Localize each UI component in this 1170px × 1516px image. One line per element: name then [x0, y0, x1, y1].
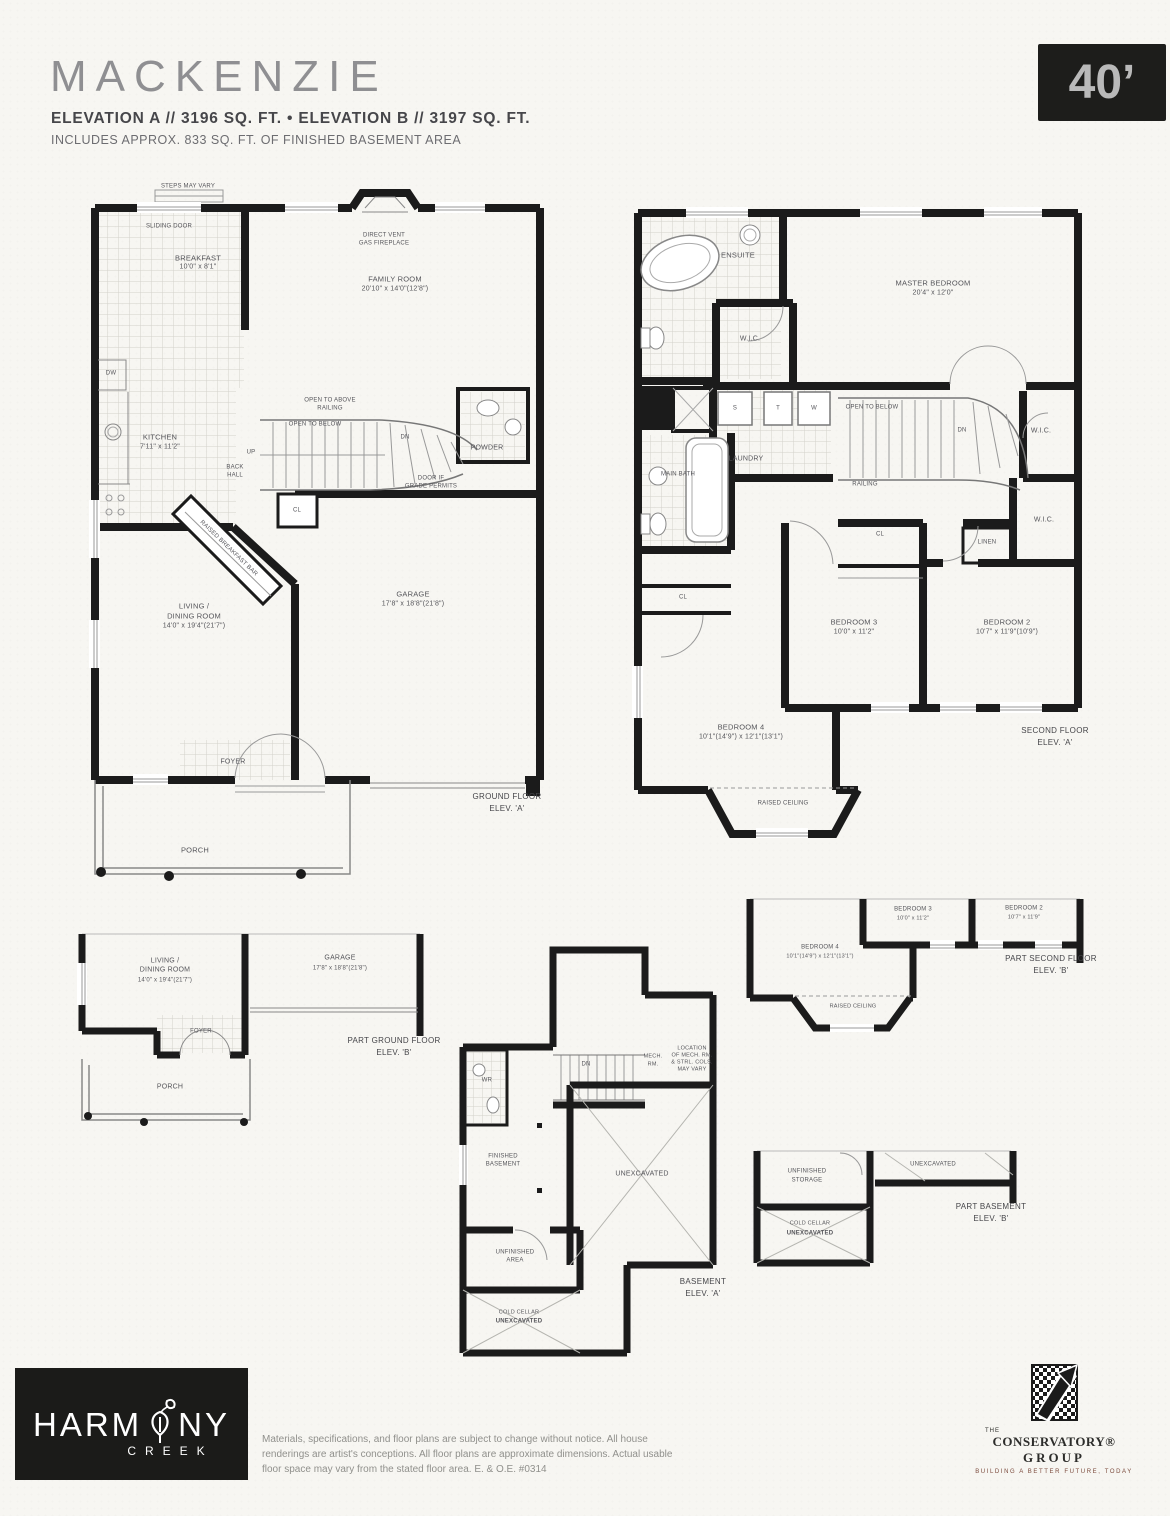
- room-label-main-bath: MAIN BATH: [661, 471, 695, 479]
- room-dims-living: 14'0" x 19'4"(21'7"): [138, 977, 192, 985]
- part-basement-b-plan: UNFINISHED STORAGE UNEXCAVATED COLD CELL…: [745, 1145, 1045, 1285]
- dn-label: DN: [400, 434, 409, 442]
- open-below-label: OPEN TO BELOW: [289, 421, 342, 429]
- room-dims-bedroom2: 10'7" x 11'9": [1008, 915, 1040, 922]
- room-label-living: LIVING /: [179, 601, 209, 610]
- room-label-porch: PORCH: [157, 1084, 183, 1093]
- room-label-living2: DINING ROOM: [167, 611, 221, 620]
- unexcavated-label: UNEXCAVATED: [910, 1161, 956, 1169]
- closet-label: CL: [293, 507, 301, 515]
- back-hall-label: BACK: [226, 464, 243, 472]
- room-label-laundry: LAUNDRY: [729, 456, 764, 465]
- basement-note: INCLUDES APPROX. 833 SQ. FT. OF FINISHED…: [51, 133, 461, 147]
- storage-label2: STORAGE: [792, 1177, 823, 1185]
- part-basement-caption2: ELEV. 'B': [973, 1214, 1008, 1224]
- part-ground-b-plan: LIVING / DINING ROOM 14'0" x 19'4"(21'7"…: [62, 928, 457, 1143]
- cold-cellar-label: COLD CELLAR: [499, 1310, 539, 1317]
- room-label-bedroom3: BEDROOM 3: [894, 906, 932, 914]
- back-hall-label2: HALL: [227, 472, 243, 480]
- part-second-caption2: ELEV. 'B': [1033, 966, 1068, 976]
- second-caption2: ELEV. 'A': [1037, 738, 1072, 748]
- room-dims-family: 20'10" x 14'0"(12'8"): [362, 286, 429, 295]
- room-dims-bedroom2: 10'7" x 11'9"(10'9"): [976, 629, 1038, 638]
- unfinished-label: UNFINISHED: [496, 1249, 535, 1257]
- page-title: MACKENZIE: [50, 52, 388, 102]
- harmony-text-left: HARM: [33, 1410, 142, 1440]
- conservatory-group-text: GROUP: [975, 1450, 1133, 1466]
- room-label-garage: GARAGE: [396, 589, 429, 598]
- laundry-s: S: [733, 405, 737, 413]
- room-label-family: FAMILY ROOM: [368, 274, 422, 283]
- room-dims-living: 14'0" x 19'4"(21'7"): [163, 623, 226, 632]
- up-label: UP: [247, 449, 256, 457]
- note-label2: OF MECH. RM.: [672, 1053, 713, 1060]
- room-label-kitchen: KITCHEN: [143, 432, 177, 441]
- part-second-caption: PART SECOND FLOOR: [1005, 954, 1097, 964]
- room-label-foyer: FOYER: [220, 759, 245, 768]
- cold-cellar-label2: UNEXCAVATED: [496, 1318, 543, 1326]
- dw-label: DW: [106, 370, 116, 378]
- door-grade-label2: GRADE PERMITS: [405, 483, 457, 491]
- room-label-foyer: FOYER: [190, 1028, 212, 1036]
- ground-caption: GROUND FLOOR: [473, 792, 542, 802]
- second-caption: SECOND FLOOR: [1021, 726, 1089, 736]
- finished-label: FINISHED: [488, 1153, 518, 1161]
- room-label-bedroom3: BEDROOM 3: [831, 617, 878, 626]
- room-dims-breakfast: 10'0" x 8'1": [180, 264, 217, 273]
- raised-ceiling-label: RAISED CEILING: [758, 800, 809, 808]
- room-dims-bedroom3: 10'0" x 11'2": [834, 629, 874, 638]
- door-grade-label: DOOR IF: [418, 475, 444, 483]
- conservatory-name: CONSERVATORY®: [975, 1434, 1133, 1450]
- elevation-line: ELEVATION A // 3196 SQ. FT. • ELEVATION …: [51, 110, 530, 128]
- open-above-label2: RAILING: [317, 405, 342, 413]
- fireplace-label: DIRECT VENT: [363, 232, 405, 240]
- finished-label2: BASEMENT: [486, 1161, 521, 1169]
- cold-cellar-label: COLD CELLAR: [790, 1221, 830, 1228]
- raised-ceiling-label: RAISED CEILING: [830, 1004, 877, 1011]
- laundry-t: T: [776, 405, 780, 413]
- room-dims-garage: 17'8" x 18'8"(21'8"): [382, 601, 445, 610]
- leaf-icon: [143, 1398, 177, 1446]
- room-label-garage: GARAGE: [324, 955, 355, 964]
- wr-label: WR: [482, 1077, 492, 1085]
- laundry-w: W: [811, 405, 817, 413]
- room-label-bedroom2: BEDROOM 2: [1005, 905, 1043, 913]
- dn-label: DN: [957, 427, 966, 435]
- unexcavated-label: UNEXCAVATED: [615, 1171, 668, 1180]
- room-dims-kitchen: 7'11" x 11'2": [140, 444, 180, 453]
- harmony-text-right: NY: [178, 1410, 230, 1440]
- note-label4: MAY VARY: [677, 1067, 706, 1074]
- cold-cellar-label2: UNEXCAVATED: [787, 1230, 834, 1238]
- basement-caption: BASEMENT: [680, 1277, 726, 1287]
- railing-label: RAILING: [852, 481, 877, 489]
- part-second-b-plan: BEDROOM 3 10'0" x 11'2" BEDROOM 2 10'7" …: [735, 895, 1090, 1045]
- room-dims-bedroom3: 10'0" x 11'2": [897, 916, 929, 923]
- basement-caption2: ELEV. 'A': [685, 1289, 720, 1299]
- sliding-door-label: SLIDING DOOR: [146, 223, 192, 231]
- wic-master-label: W.I.C.: [740, 336, 760, 345]
- room-label-bedroom4: BEDROOM 4: [718, 722, 765, 731]
- wic-right-label: W.I.C.: [1031, 428, 1051, 437]
- part-ground-caption: PART GROUND FLOOR: [347, 1036, 440, 1046]
- part-basement-caption: PART BASEMENT: [956, 1202, 1027, 1212]
- ground-floor-drawing: [85, 182, 560, 894]
- steps-note: STEPS MAY VARY: [161, 183, 215, 191]
- open-below-label: OPEN TO BELOW: [846, 404, 899, 412]
- conservatory-tagline: BUILDING A BETTER FUTURE, TODAY: [975, 1469, 1133, 1475]
- room-dims-bedroom4: 10'1"(14'9") x 12'1"(13'1"): [699, 734, 783, 743]
- room-label-master: MASTER BEDROOM: [896, 278, 971, 287]
- second-floor-plan: ENSUITE MASTER BEDROOM 20'4" x 12'0" W.I…: [628, 188, 1098, 856]
- disclaimer-text: Materials, specifications, and floor pla…: [262, 1432, 674, 1477]
- conservatory-emblem-icon: [1031, 1364, 1078, 1421]
- part-ground-caption2: ELEV. 'B': [376, 1048, 411, 1058]
- closet-label-bath: CL: [679, 594, 687, 602]
- harmony-creek-logo: HARM NY CREEK: [15, 1368, 248, 1480]
- lot-width-badge: 40’: [1038, 44, 1166, 121]
- ground-caption2: ELEV. 'A': [489, 804, 524, 814]
- mech-label2: RM.: [648, 1062, 659, 1069]
- closet-label-bed3: CL: [876, 531, 884, 539]
- conservatory-group-logo: THE CONSERVATORY® GROUP BUILDING A BETTE…: [975, 1364, 1133, 1475]
- note-label3: & STRL. COLS.: [671, 1060, 712, 1067]
- mech-label: MECH.: [644, 1054, 663, 1061]
- room-label-living2: DINING ROOM: [140, 967, 190, 976]
- open-above-label: OPEN TO ABOVE: [304, 397, 355, 405]
- storage-label: UNFINISHED: [788, 1168, 827, 1176]
- second-floor-drawing: [628, 188, 1098, 856]
- room-label-living: LIVING /: [151, 958, 179, 967]
- room-dims-master: 20'4" x 12'0": [913, 290, 954, 299]
- room-label-breakfast: BREAKFAST: [175, 253, 221, 262]
- ground-floor-plan: STEPS MAY VARY SLIDING DOOR DIRECT VENT …: [85, 182, 560, 894]
- wic-lower-label: W.I.C.: [1034, 517, 1054, 526]
- room-label-powder: POWDER: [471, 445, 504, 454]
- linen-label: LINEN: [978, 539, 997, 547]
- unfinished-label2: AREA: [506, 1257, 523, 1265]
- room-label-ensuite: ENSUITE: [721, 250, 755, 259]
- room-dims-garage: 17'8" x 18'8"(21'8"): [313, 965, 367, 973]
- room-label-porch: PORCH: [181, 845, 209, 854]
- harmony-creek-text: CREEK: [15, 1444, 248, 1458]
- room-dims-bedroom4: 10'1"(14'9") x 12'1"(13'1"): [786, 954, 853, 961]
- room-label-bedroom4: BEDROOM 4: [801, 944, 839, 952]
- room-label-bedroom2: BEDROOM 2: [984, 617, 1031, 626]
- brochure-page: MACKENZIE ELEVATION A // 3196 SQ. FT. • …: [0, 0, 1170, 1516]
- dn-label: DN: [581, 1061, 590, 1069]
- note-label: LOCATION: [677, 1046, 706, 1053]
- fireplace-label2: GAS FIREPLACE: [359, 240, 409, 248]
